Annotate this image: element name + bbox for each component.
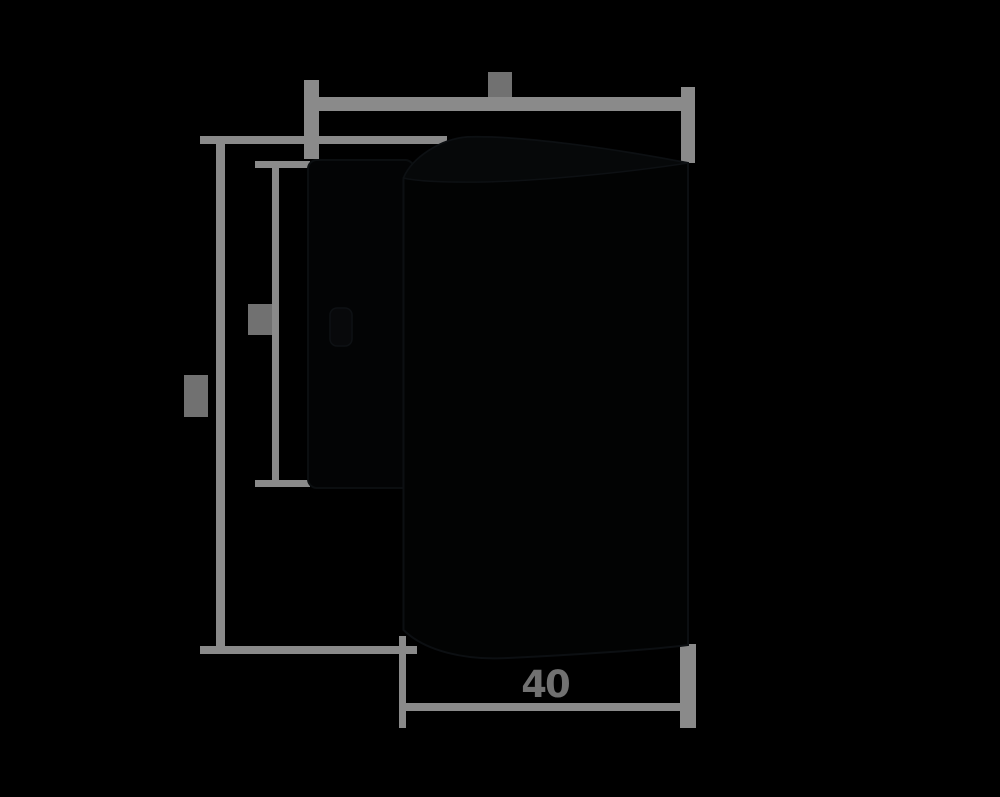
overall-height-dimension-label-blob — [184, 375, 208, 417]
top-width-dimension-line — [312, 97, 688, 111]
product-back-plate-knob — [330, 308, 352, 346]
bottom-diameter-dimension-left-tick — [399, 636, 406, 728]
back-plate-height-dimension-label-blob — [248, 304, 272, 335]
dimension-drawing: 40 — [0, 0, 1000, 797]
product-back-plate — [308, 160, 414, 488]
overall-height-dimension-bottom-tick — [200, 646, 417, 654]
top-width-dimension-right-tick — [681, 87, 695, 163]
top-width-dimension-left-tick — [304, 80, 319, 159]
back-plate-height-dimension-bottom-tick — [255, 480, 310, 487]
product-silhouette — [0, 0, 1000, 797]
overall-height-dimension-top-tick — [200, 136, 447, 144]
top-width-dimension-label-blob — [488, 72, 512, 97]
back-plate-height-dimension-top-tick — [255, 161, 310, 168]
bottom-diameter-dimension-label: 40 — [518, 666, 572, 700]
back-plate-height-dimension-line — [272, 161, 279, 487]
overall-height-dimension-line — [216, 136, 225, 653]
product-cylinder-body — [404, 137, 689, 659]
bottom-diameter-dimension-right-tick — [680, 644, 696, 728]
